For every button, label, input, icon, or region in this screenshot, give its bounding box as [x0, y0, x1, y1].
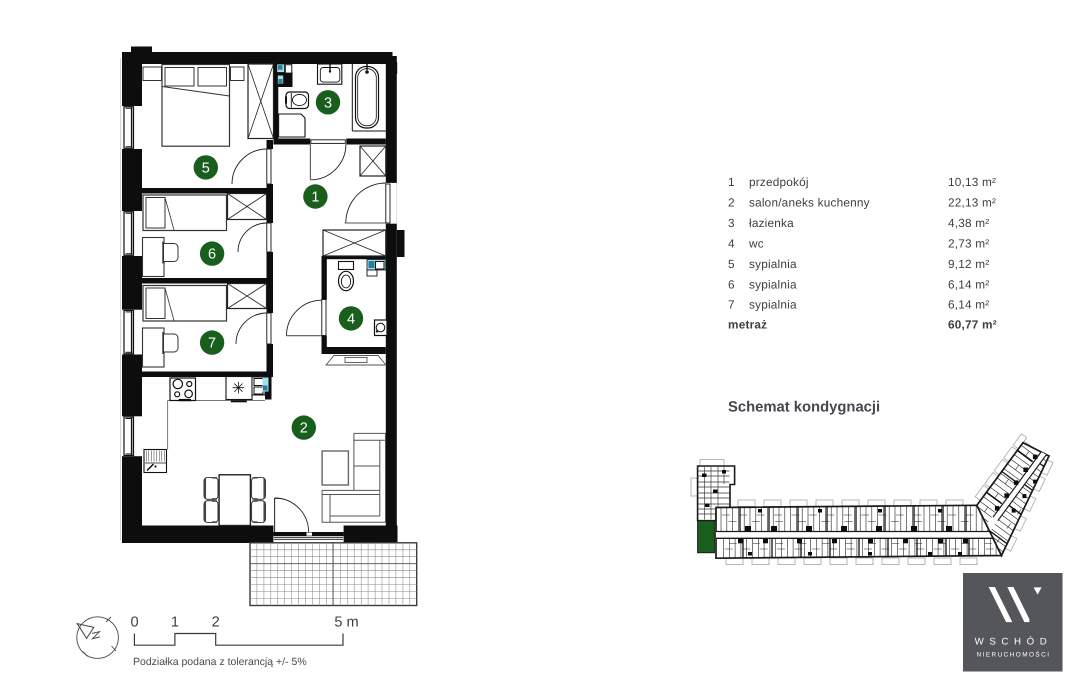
svg-text:2: 2 — [300, 421, 308, 437]
svg-text:sypialnia: sypialnia — [749, 298, 797, 312]
svg-text:✳: ✳ — [232, 381, 245, 398]
svg-text:22,13 m²: 22,13 m² — [948, 196, 996, 210]
svg-text:2,73 m²: 2,73 m² — [948, 236, 989, 250]
svg-text:salon/aneks kuchenny: salon/aneks kuchenny — [749, 196, 870, 210]
svg-text:5 m: 5 m — [334, 615, 358, 631]
svg-text:3: 3 — [324, 95, 332, 111]
svg-text:4: 4 — [347, 311, 355, 327]
svg-text:2: 2 — [212, 615, 220, 631]
svg-text:3: 3 — [728, 216, 735, 230]
svg-text:łazienka: łazienka — [749, 216, 794, 230]
svg-text:0: 0 — [130, 615, 138, 631]
svg-text:5: 5 — [202, 160, 210, 176]
svg-text:1: 1 — [171, 615, 179, 631]
svg-text:przedpokój: przedpokój — [749, 175, 809, 189]
svg-text:6,14 m²: 6,14 m² — [948, 277, 989, 291]
svg-text:10,13 m²: 10,13 m² — [948, 175, 996, 189]
svg-text:1: 1 — [728, 175, 735, 189]
svg-text:NIERUCHOMOŚCI: NIERUCHOMOŚCI — [977, 651, 1051, 659]
svg-text:Podziałka podana z tolerancją: Podziałka podana z tolerancją +/- 5% — [133, 656, 307, 668]
svg-text:WSCHÓD: WSCHÓD — [975, 636, 1053, 648]
svg-text:7: 7 — [728, 298, 735, 312]
svg-text:2: 2 — [728, 196, 735, 210]
svg-text:4: 4 — [728, 236, 735, 250]
svg-text:sypialnia: sypialnia — [749, 277, 797, 291]
svg-text:9,12 m²: 9,12 m² — [948, 257, 989, 271]
svg-text:Schemat kondygnacji: Schemat kondygnacji — [728, 400, 880, 416]
svg-text:60,77 m²: 60,77 m² — [948, 318, 997, 332]
svg-text:wc: wc — [748, 236, 764, 250]
svg-text:6: 6 — [208, 247, 216, 263]
svg-text:5: 5 — [728, 257, 735, 271]
svg-text:4,38 m²: 4,38 m² — [948, 216, 989, 230]
svg-text:6,14 m²: 6,14 m² — [948, 298, 989, 312]
svg-text:1: 1 — [311, 190, 319, 206]
svg-text:metraż: metraż — [728, 318, 767, 332]
svg-text:6: 6 — [728, 277, 735, 291]
svg-text:sypialnia: sypialnia — [749, 257, 797, 271]
svg-text:7: 7 — [208, 336, 216, 352]
